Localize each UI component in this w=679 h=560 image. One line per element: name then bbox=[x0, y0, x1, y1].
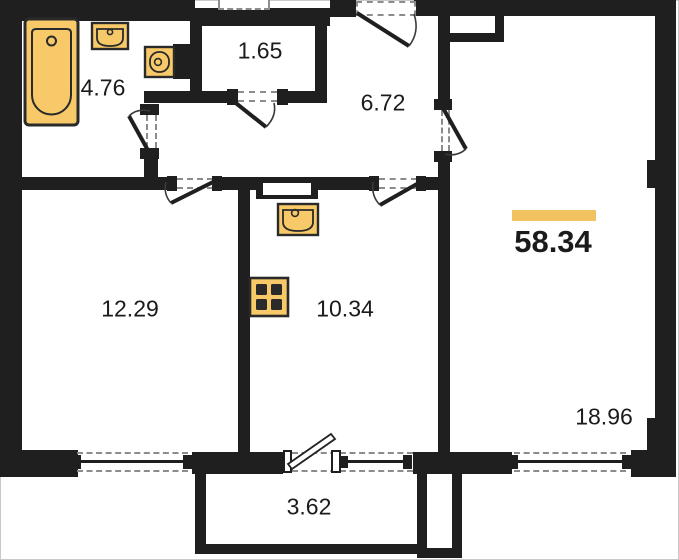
entrance-door-leaf bbox=[357, 13, 409, 46]
door-jamb bbox=[434, 99, 452, 110]
area-label-hallway: 6.72 bbox=[361, 90, 406, 117]
area-label-kitchen: 10.34 bbox=[316, 296, 374, 323]
wall-top-mid bbox=[195, 8, 330, 26]
kitchen-door-opening bbox=[379, 178, 417, 180]
window-balcony bbox=[347, 460, 406, 463]
window-jamb bbox=[509, 455, 518, 469]
window-jamb bbox=[403, 455, 412, 469]
wall-living-lower bbox=[438, 161, 450, 452]
window-jamb bbox=[340, 456, 348, 468]
kitchen-sink bbox=[278, 204, 318, 235]
entrance-door-arc bbox=[409, 14, 416, 46]
window-jamb bbox=[622, 455, 631, 469]
room-door-leaf bbox=[171, 180, 217, 203]
living-door-opening bbox=[441, 110, 443, 151]
wall-bottom-seg1 bbox=[192, 452, 283, 474]
living-door-opening bbox=[448, 110, 450, 151]
window-left-edge bbox=[77, 452, 188, 454]
window-right bbox=[517, 460, 624, 463]
stove bbox=[250, 278, 288, 316]
room-door-opening bbox=[177, 178, 213, 180]
wall-right bbox=[655, 16, 676, 474]
wall-bath-door-stub bbox=[144, 159, 158, 178]
door-jamb bbox=[167, 176, 177, 191]
wall-wc-bottom-right bbox=[288, 91, 327, 103]
kitchen-door-opening bbox=[379, 187, 417, 189]
wall-top-right bbox=[414, 0, 676, 16]
bath-door-opening bbox=[146, 115, 148, 148]
wall-top-left bbox=[0, 0, 195, 21]
toilet bbox=[145, 44, 190, 79]
wc-door-opening bbox=[238, 100, 277, 102]
door-jamb bbox=[369, 176, 379, 191]
living-door-leaf bbox=[443, 108, 466, 149]
wall-bottom-left-corner bbox=[0, 450, 78, 477]
window-right-edge bbox=[514, 452, 626, 454]
wall-wc-right bbox=[315, 8, 327, 103]
wall-living-upper bbox=[438, 16, 450, 100]
balcony-wall-left bbox=[195, 474, 206, 554]
area-label-wc: 1.65 bbox=[238, 38, 283, 65]
shaft-opening-top bbox=[218, 0, 270, 10]
window-jamb bbox=[183, 455, 192, 469]
wall-top-entry-block bbox=[330, 0, 356, 17]
wall-wc-bottom-left bbox=[144, 91, 228, 103]
door-jamb bbox=[227, 89, 238, 105]
area-label-bathroom: 4.76 bbox=[81, 75, 126, 102]
area-label-room: 12.29 bbox=[101, 296, 159, 323]
window-left bbox=[80, 460, 185, 463]
bathtub bbox=[25, 19, 78, 125]
area-label-balcony: 3.62 bbox=[287, 494, 332, 521]
wall-wc-left bbox=[190, 8, 202, 103]
wall-shaft-right-bar bbox=[495, 16, 504, 42]
wall-left bbox=[0, 21, 22, 450]
wall-bottom-right-corner bbox=[631, 450, 676, 477]
window-left-edge bbox=[77, 470, 188, 472]
wall-bottom-seg2 bbox=[413, 452, 512, 474]
kitchen-wall-niche-inner bbox=[263, 183, 311, 195]
bath-door-opening bbox=[155, 115, 157, 148]
door-jamb bbox=[434, 151, 452, 162]
door-jamb bbox=[416, 176, 426, 191]
door-jamb bbox=[140, 104, 159, 115]
window-jamb bbox=[72, 455, 81, 469]
entrance-opening bbox=[356, 1, 416, 16]
total-area-accent-bar bbox=[512, 210, 596, 221]
wall-right-notch-upper bbox=[647, 160, 655, 188]
wc-door-opening bbox=[238, 91, 277, 93]
total-area-label: 58.34 bbox=[514, 224, 592, 260]
wc-door-arc bbox=[266, 103, 275, 127]
balcony-opening-edge bbox=[292, 470, 413, 472]
door-jamb bbox=[140, 148, 159, 159]
door-jamb bbox=[212, 176, 222, 191]
wall-right-notch-lower bbox=[647, 418, 655, 450]
balcony-annex-right bbox=[452, 474, 462, 558]
door-jamb bbox=[277, 89, 288, 105]
balcony-door-jamb bbox=[331, 450, 341, 473]
balcony-wall-bottom bbox=[195, 544, 425, 554]
wall-mid-a bbox=[22, 177, 168, 190]
balcony-opening-edge bbox=[292, 452, 413, 454]
washbasin bbox=[92, 23, 128, 49]
area-label-living-room: 18.96 bbox=[575, 404, 633, 431]
floor-plan: 4.76 1.65 6.72 12.29 10.34 18.96 3.62 58… bbox=[0, 0, 679, 560]
balcony-annex-left bbox=[417, 474, 427, 558]
window-right-edge bbox=[514, 470, 626, 472]
wall-kitchen-room-divider bbox=[238, 177, 250, 452]
balcony-door-jamb bbox=[283, 450, 292, 473]
room-door-opening bbox=[177, 187, 213, 189]
